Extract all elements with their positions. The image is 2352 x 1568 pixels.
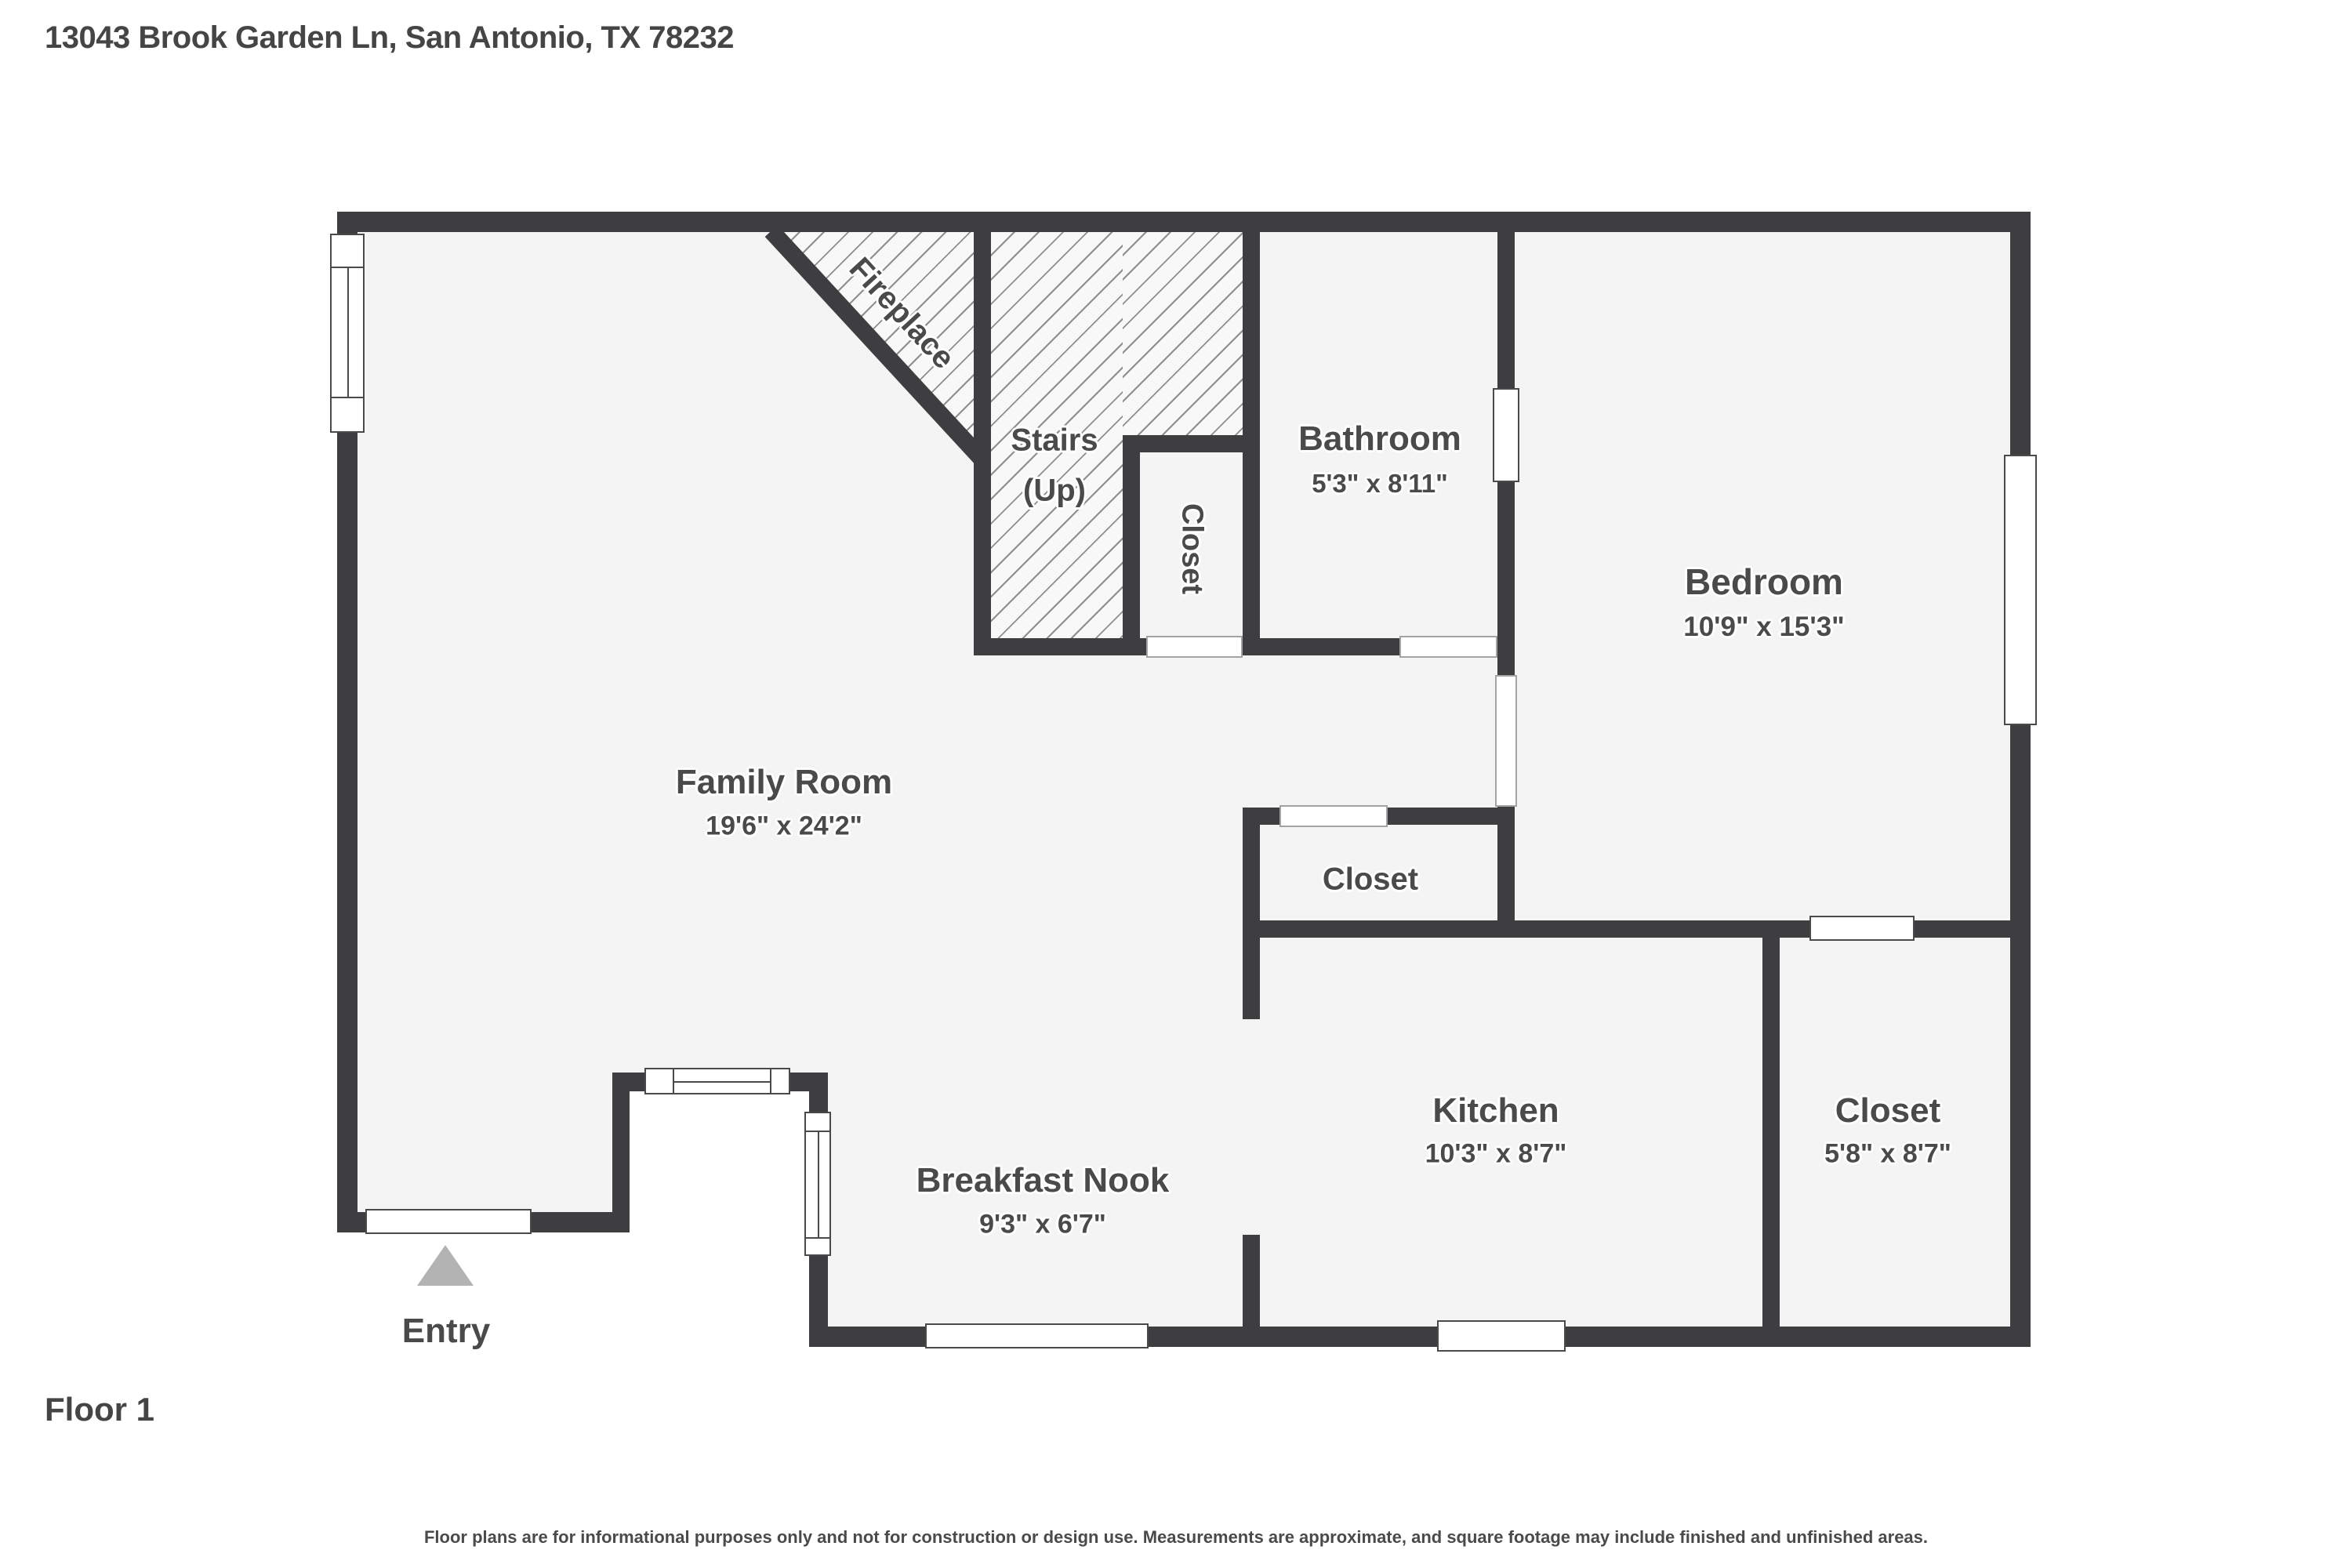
stairs-hatch-right: [1123, 232, 1243, 435]
wall-exterior-top: [337, 212, 2031, 232]
room-dims-bathroom: 5'3" x 8'11": [1312, 469, 1448, 499]
wall-kitchen-left-lower: [1243, 1235, 1260, 1347]
wall-alcove-left: [612, 1073, 630, 1232]
wall-kitchen-closet-divider: [1762, 938, 1780, 1347]
wall-stairs-bottom: [974, 638, 1146, 655]
room-dims-breakfast-nook: 9'3" x 6'7": [979, 1210, 1106, 1240]
disclaimer-text: Floor plans are for informational purpos…: [0, 1527, 2352, 1548]
window-family-left: [330, 234, 365, 433]
wall-hall-closet-left: [1243, 808, 1260, 938]
window-breakfast-nook-bottom: [925, 1323, 1149, 1348]
door-stairs-closet: [1146, 636, 1243, 658]
window-divider: [332, 397, 363, 398]
wall-bathroom-bedroom-upper: [1497, 212, 1515, 388]
door-hall-closet: [1279, 805, 1388, 827]
room-label-bathroom: Bathroom: [1298, 419, 1461, 459]
room-label-breakfast-nook: Breakfast Nook: [916, 1161, 1170, 1200]
room-label-hall-closet: Closet: [1323, 862, 1418, 898]
door-bathroom: [1399, 636, 1497, 658]
room-label-stairs-closet: Closet: [1175, 503, 1209, 594]
window-divider: [770, 1069, 771, 1093]
window-divider: [347, 268, 349, 397]
room-label-stairs-up: (Up): [1023, 474, 1086, 509]
window-divider: [806, 1237, 829, 1239]
wall-exterior-right: [2010, 212, 2031, 1347]
floor-plan-page: 13043 Brook Garden Ln, San Antonio, TX 7…: [0, 0, 2352, 1568]
room-dims-kitchen: 10'3" x 8'7": [1425, 1139, 1567, 1170]
room-label-right-closet: Closet: [1835, 1091, 1940, 1131]
room-dims-bedroom: 10'9" x 15'3": [1683, 612, 1845, 643]
window-divider: [674, 1081, 770, 1083]
room-label-kitchen: Kitchen: [1432, 1091, 1559, 1131]
window-divider: [818, 1132, 819, 1237]
room-dims-right-closet: 5'8" x 8'7": [1824, 1139, 1951, 1170]
address-title: 13043 Brook Garden Ln, San Antonio, TX 7…: [45, 20, 734, 56]
door-bedroom: [1495, 675, 1517, 807]
wall-stairs-closet-left: [1123, 435, 1140, 655]
room-label-family-room: Family Room: [676, 763, 892, 802]
wall-bathroom-left: [1243, 212, 1260, 655]
entry-arrow-icon: [417, 1245, 474, 1286]
room-label-bedroom: Bedroom: [1685, 561, 1843, 603]
window-breakfast-nook-left: [804, 1112, 831, 1256]
window-kitchen-bottom: [1437, 1320, 1566, 1352]
room-dims-family-room: 19'6" x 24'2": [706, 811, 862, 842]
wall-stairs-closet-top: [1123, 435, 1243, 452]
floor-label: Floor 1: [45, 1391, 154, 1428]
window-bathroom-bedroom: [1493, 388, 1519, 482]
window-alcove-top: [644, 1068, 790, 1094]
window-bedroom-bottom: [1809, 916, 1915, 941]
window-bedroom-right: [2004, 455, 2037, 725]
entry-label: Entry: [402, 1312, 490, 1351]
window-entry: [365, 1209, 532, 1234]
room-label-stairs: Stairs: [1011, 423, 1098, 459]
wall-kitchen-left-upper: [1243, 938, 1260, 1019]
exterior-notch-alcove: [630, 1091, 809, 1347]
wall-bathroom-bedroom-mid: [1497, 482, 1515, 675]
wall-bedroom-hall-lower: [1497, 807, 1515, 938]
